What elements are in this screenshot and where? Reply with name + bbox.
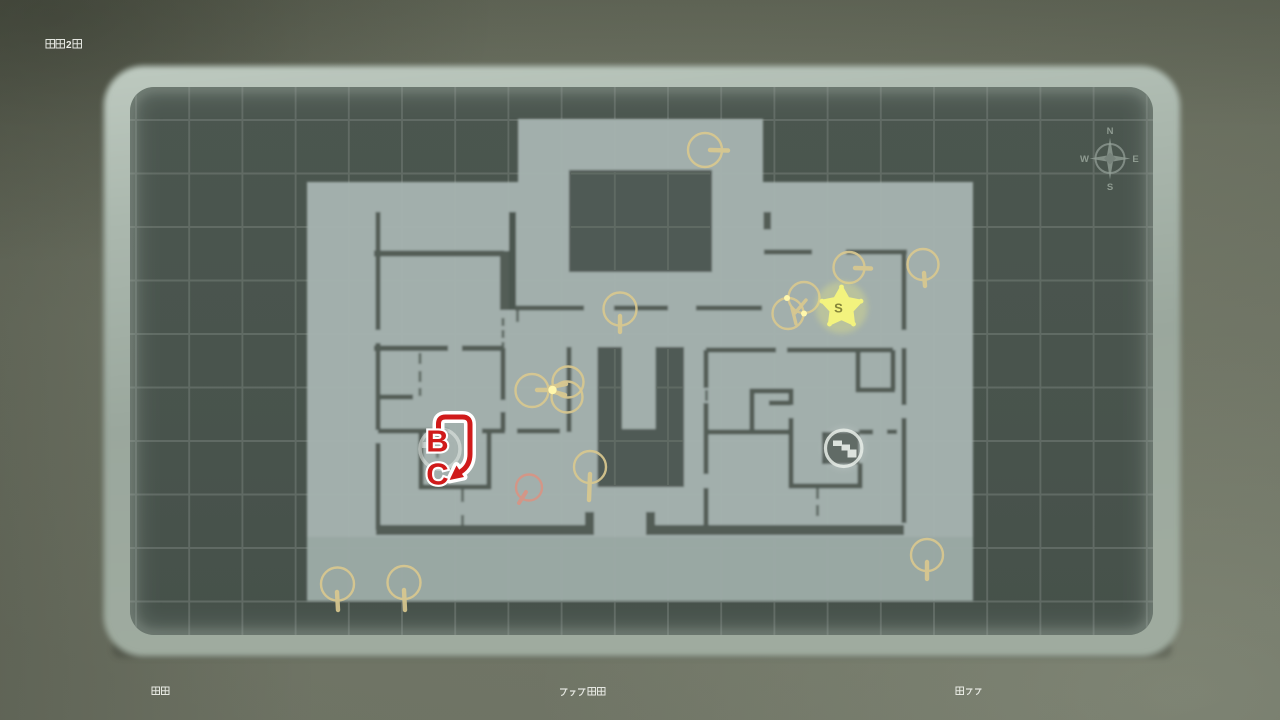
svg-text:W: W bbox=[1080, 154, 1089, 165]
svg-text:S: S bbox=[1107, 182, 1113, 193]
svg-text:C: C bbox=[426, 457, 448, 492]
svg-text:B: B bbox=[426, 424, 448, 459]
svg-text:N: N bbox=[1107, 126, 1114, 137]
svg-text:S: S bbox=[834, 301, 843, 316]
svg-text:E: E bbox=[1132, 154, 1138, 165]
svg-text:2: 2 bbox=[66, 40, 72, 51]
